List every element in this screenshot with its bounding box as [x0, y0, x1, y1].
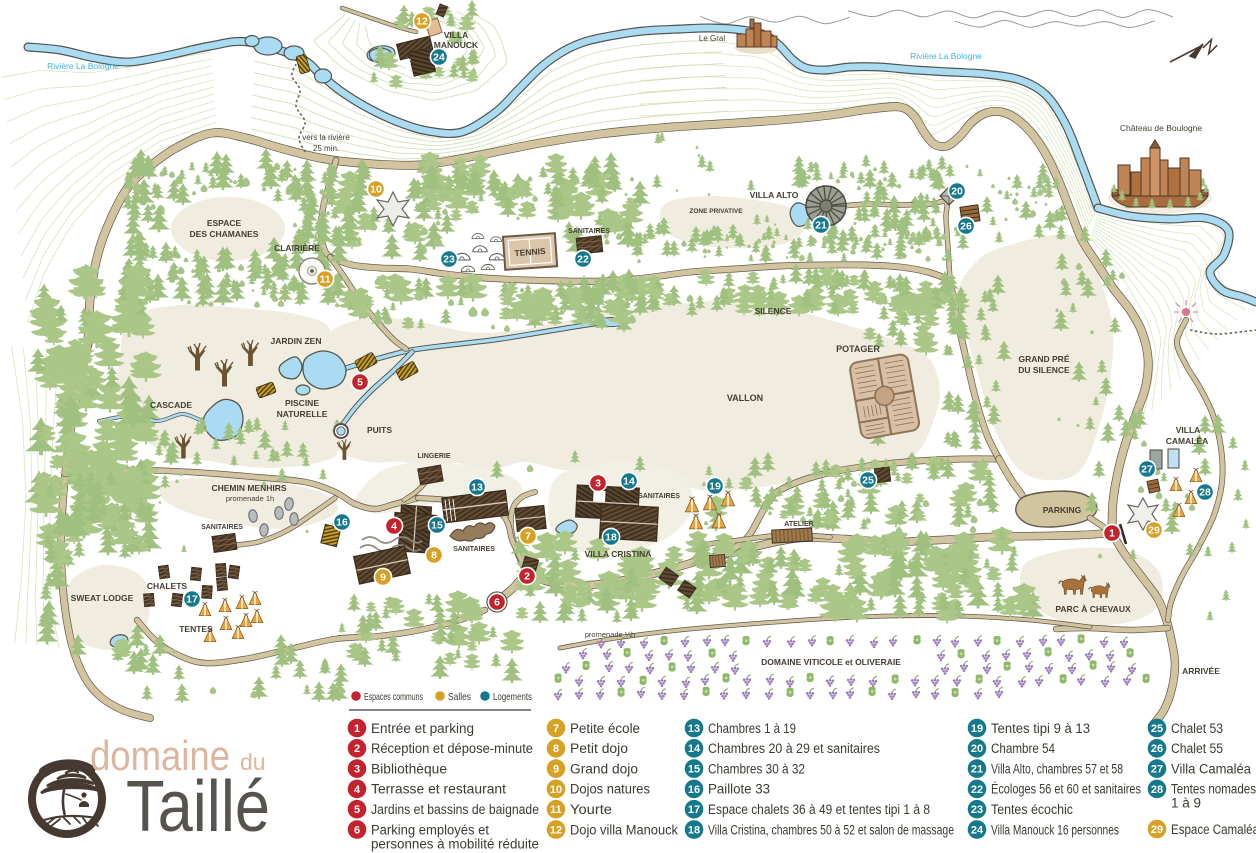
svg-text:16: 16 — [336, 517, 348, 529]
svg-text:14: 14 — [688, 743, 701, 755]
svg-text:Jardins et bassins de baignade: Jardins et bassins de baignade — [371, 802, 539, 817]
svg-text:Tentes écochic: Tentes écochic — [991, 802, 1073, 817]
svg-text:CASCADE: CASCADE — [150, 400, 192, 410]
svg-text:27: 27 — [1151, 764, 1163, 776]
svg-text:Espaces communs: Espaces communs — [364, 691, 423, 703]
svg-text:20: 20 — [971, 743, 983, 755]
svg-text:CLAIRIÈRE: CLAIRIÈRE — [274, 243, 320, 253]
svg-text:Espace Camaléa: Espace Camaléa — [1171, 822, 1256, 837]
svg-text:Chambres 20 à 29 et sanitaires: Chambres 20 à 29 et sanitaires — [708, 741, 880, 756]
svg-text:12: 12 — [550, 824, 562, 836]
svg-text:Réception et dépose-minute: Réception et dépose-minute — [371, 741, 533, 756]
svg-text:21: 21 — [815, 220, 827, 232]
svg-text:10: 10 — [550, 784, 562, 796]
svg-text:PARC À CHEVAUX: PARC À CHEVAUX — [1055, 604, 1131, 614]
svg-text:15: 15 — [431, 520, 443, 532]
svg-text:Villa Cristina, chambres 50 à: Villa Cristina, chambres 50 à 52 et salo… — [708, 822, 954, 837]
svg-text:28: 28 — [1151, 784, 1163, 796]
svg-text:Bibliothèque: Bibliothèque — [371, 761, 447, 776]
svg-text:Villa Manouck 16 personnes: Villa Manouck 16 personnes — [991, 822, 1119, 837]
svg-text:21: 21 — [971, 764, 983, 776]
svg-text:10: 10 — [370, 184, 382, 196]
svg-text:Petite école: Petite école — [570, 721, 640, 736]
svg-text:Tentes nomades: Tentes nomades — [1171, 782, 1256, 797]
svg-text:19: 19 — [709, 481, 721, 493]
svg-text:7: 7 — [553, 723, 559, 735]
svg-text:vers la rivière: vers la rivière — [302, 133, 350, 142]
svg-text:2: 2 — [524, 571, 530, 583]
svg-text:GRAND PRÉ: GRAND PRÉ — [1018, 354, 1069, 364]
svg-text:18: 18 — [605, 532, 617, 544]
svg-text:Chambre 54: Chambre 54 — [991, 741, 1055, 756]
svg-text:ZONE PRIVATIVE: ZONE PRIVATIVE — [689, 208, 743, 215]
svg-text:8: 8 — [431, 550, 437, 562]
svg-text:PUITS: PUITS — [367, 425, 392, 435]
svg-text:SWEAT LODGE: SWEAT LODGE — [71, 593, 134, 603]
svg-text:29: 29 — [1151, 824, 1163, 836]
svg-text:Chalet 55: Chalet 55 — [1171, 741, 1223, 756]
svg-text:29: 29 — [1148, 525, 1160, 537]
svg-text:SANITAIRES: SANITAIRES — [638, 493, 680, 500]
svg-text:6: 6 — [494, 597, 500, 609]
svg-text:13: 13 — [688, 723, 700, 735]
svg-text:PISCINE: PISCINE — [285, 398, 319, 408]
svg-text:VILLA ALTO: VILLA ALTO — [750, 190, 799, 200]
svg-text:TENTES: TENTES — [179, 624, 213, 634]
svg-text:PARKING: PARKING — [1043, 505, 1082, 515]
svg-text:POTAGER: POTAGER — [836, 344, 880, 354]
svg-text:Villa Camaléa: Villa Camaléa — [1171, 761, 1251, 776]
svg-text:Salles: Salles — [448, 691, 471, 703]
svg-text:CHALETS: CHALETS — [147, 581, 187, 591]
svg-text:11: 11 — [319, 274, 330, 286]
svg-text:ESPACE: ESPACE — [207, 218, 242, 228]
svg-text:22: 22 — [971, 784, 983, 796]
svg-text:Dojo villa Manouck: Dojo villa Manouck — [570, 822, 678, 837]
svg-text:17: 17 — [186, 594, 198, 606]
svg-text:DOMAINE VITICOLE et OLIVERAI: DOMAINE VITICOLE et OLIVERAIE — [761, 657, 901, 667]
svg-text:23: 23 — [971, 804, 983, 816]
svg-text:Chambres 30 à 32: Chambres 30 à 32 — [708, 761, 805, 776]
svg-text:15: 15 — [688, 764, 700, 776]
svg-text:Paillote 33: Paillote 33 — [708, 782, 770, 797]
svg-text:1: 1 — [354, 723, 360, 735]
svg-text:LINGERIE: LINGERIE — [417, 453, 450, 460]
svg-text:Chambres 1 à 19: Chambres 1 à 19 — [708, 721, 796, 736]
svg-text:CAMALÉA: CAMALÉA — [1166, 436, 1209, 446]
svg-text:25: 25 — [1151, 723, 1163, 735]
svg-text:28: 28 — [1199, 487, 1211, 499]
svg-text:25 min.: 25 min. — [313, 144, 339, 153]
svg-text:1 à 9: 1 à 9 — [1171, 796, 1201, 811]
svg-text:Chalet 53: Chalet 53 — [1171, 721, 1223, 736]
svg-text:Château de Boulogne: Château de Boulogne — [1120, 123, 1203, 133]
svg-text:Taillé: Taillé — [126, 767, 270, 847]
svg-text:4: 4 — [391, 521, 397, 533]
svg-text:SANITAIRES: SANITAIRES — [568, 228, 610, 235]
svg-text:4: 4 — [354, 784, 361, 796]
svg-text:14: 14 — [623, 476, 635, 488]
svg-text:25: 25 — [862, 475, 874, 487]
svg-text:promenade ¼h: promenade ¼h — [585, 630, 635, 639]
svg-text:1: 1 — [1109, 528, 1115, 540]
svg-text:26: 26 — [960, 221, 972, 233]
svg-text:VILLA: VILLA — [444, 30, 469, 40]
svg-text:ARRIVÉE: ARRIVÉE — [1182, 666, 1220, 676]
svg-text:SANITAIRES: SANITAIRES — [453, 546, 495, 553]
svg-text:personnes à mobilité réduite: personnes à mobilité réduite — [371, 836, 539, 851]
svg-text:3: 3 — [595, 478, 601, 490]
svg-text:VALLON: VALLON — [727, 393, 763, 403]
svg-text:Tentes tipi 9 à 13: Tentes tipi 9 à 13 — [991, 721, 1090, 736]
svg-text:JARDIN ZEN: JARDIN ZEN — [270, 336, 321, 346]
svg-text:26: 26 — [1151, 743, 1163, 755]
svg-text:promenade 1h: promenade 1h — [226, 494, 274, 503]
svg-text:5: 5 — [354, 804, 360, 816]
svg-text:17: 17 — [688, 804, 700, 816]
svg-text:ATELIER: ATELIER — [784, 521, 813, 528]
svg-text:VILLA CRISTINA: VILLA CRISTINA — [585, 549, 652, 559]
svg-text:27: 27 — [1141, 464, 1153, 476]
svg-text:CHEMIN MENHIRS: CHEMIN MENHIRS — [211, 483, 286, 493]
svg-text:13: 13 — [471, 482, 483, 494]
svg-text:7: 7 — [525, 531, 531, 543]
svg-text:16: 16 — [688, 784, 700, 796]
svg-text:20: 20 — [951, 186, 963, 198]
svg-text:NATURELLE: NATURELLE — [277, 409, 328, 419]
svg-text:19: 19 — [971, 723, 983, 735]
svg-text:5: 5 — [357, 377, 363, 389]
svg-text:DU SILENCE: DU SILENCE — [1018, 365, 1070, 375]
svg-text:Grand dojo: Grand dojo — [570, 761, 638, 776]
svg-text:Rivière La Bologne: Rivière La Bologne — [910, 51, 982, 61]
svg-text:11: 11 — [550, 804, 562, 816]
svg-text:Dojos natures: Dojos natures — [570, 782, 650, 797]
svg-text:Espace chalets 36 à 49 et tent: Espace chalets 36 à 49 et tentes tipi 1 … — [708, 802, 930, 817]
svg-text:Parking employés et: Parking employés et — [371, 822, 489, 837]
svg-text:SILENCE: SILENCE — [755, 306, 792, 316]
svg-text:Villa Alto, chambres 57 et 58: Villa Alto, chambres 57 et 58 — [991, 761, 1123, 776]
svg-text:6: 6 — [354, 824, 360, 836]
svg-text:3: 3 — [354, 764, 360, 776]
svg-text:2: 2 — [354, 743, 360, 755]
svg-text:Entrée et parking: Entrée et parking — [371, 721, 474, 736]
svg-text:Logements: Logements — [493, 691, 532, 703]
svg-text:24: 24 — [433, 52, 445, 64]
svg-text:Yourte: Yourte — [570, 802, 612, 817]
svg-text:24: 24 — [971, 824, 984, 836]
svg-text:DES CHAMANES: DES CHAMANES — [190, 229, 259, 239]
svg-text:SANITAIRES: SANITAIRES — [201, 524, 243, 531]
svg-text:8: 8 — [553, 743, 559, 755]
svg-text:9: 9 — [553, 764, 559, 776]
svg-text:Le Gral: Le Gral — [699, 34, 725, 43]
svg-text:VILLA: VILLA — [1176, 425, 1201, 435]
svg-text:12: 12 — [416, 16, 428, 28]
svg-text:Petit dojo: Petit dojo — [570, 741, 628, 756]
svg-text:18: 18 — [688, 824, 700, 836]
svg-text:Terrasse et restaurant: Terrasse et restaurant — [371, 782, 506, 797]
svg-text:Écologes 56 et 60 et sanitaire: Écologes 56 et 60 et sanitaires — [991, 782, 1141, 797]
svg-text:Rivière La Bologne: Rivière La Bologne — [47, 61, 119, 71]
svg-text:23: 23 — [443, 254, 455, 266]
svg-text:9: 9 — [380, 572, 386, 584]
svg-text:22: 22 — [577, 254, 589, 266]
